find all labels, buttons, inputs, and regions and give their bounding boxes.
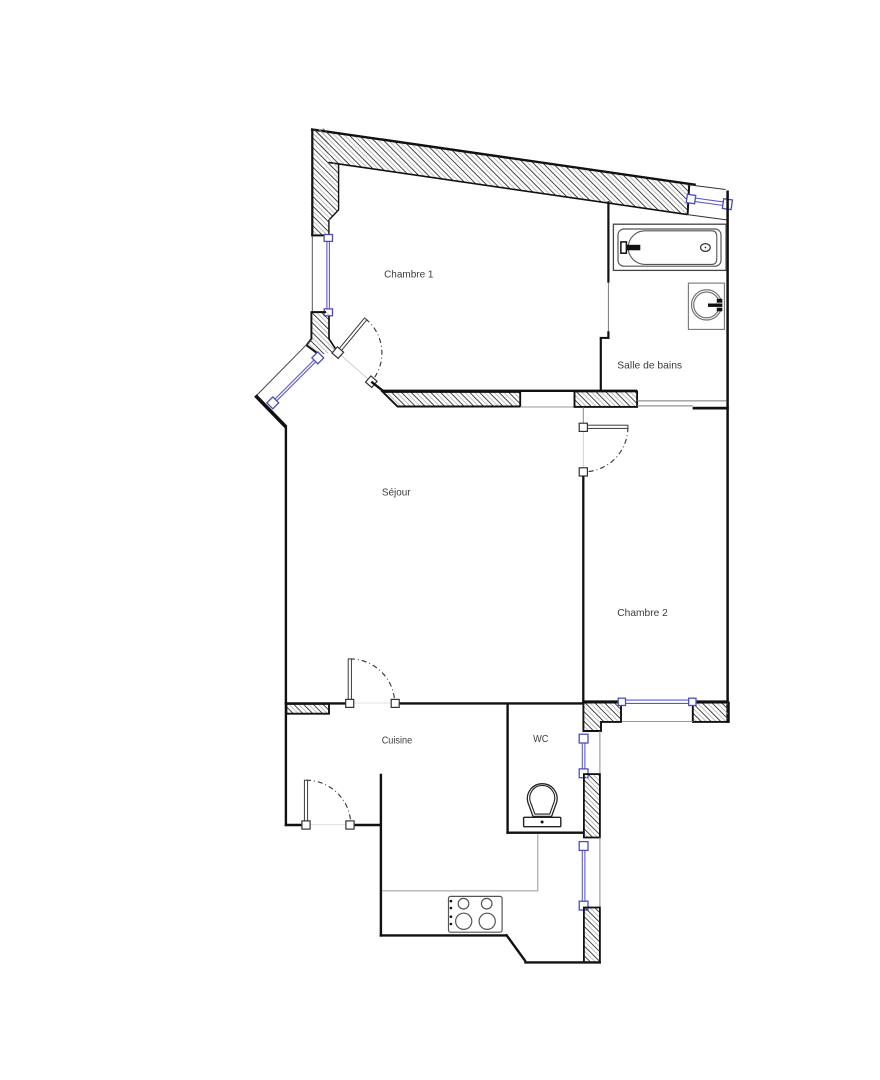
svg-text:Cuisine: Cuisine	[382, 735, 413, 746]
svg-text:Chambre 1: Chambre 1	[384, 270, 434, 281]
svg-text:Salle de bains: Salle de bains	[617, 361, 682, 372]
svg-text:Chambre 2: Chambre 2	[617, 608, 668, 619]
svg-text:WC: WC	[533, 734, 549, 745]
svg-text:Séjour: Séjour	[382, 488, 411, 499]
